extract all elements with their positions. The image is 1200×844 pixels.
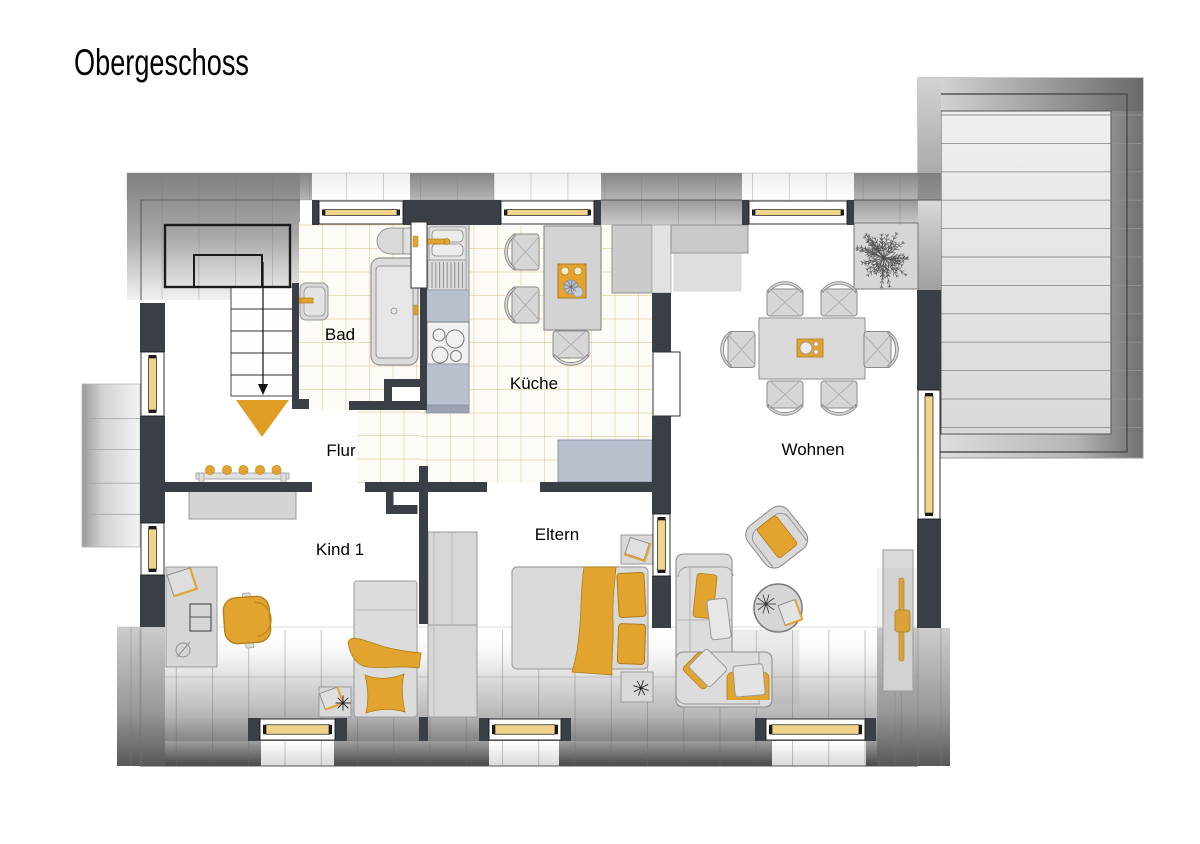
svg-text:Bad: Bad [325,325,355,344]
svg-text:Obergeschoss: Obergeschoss [74,42,249,83]
svg-text:Flur: Flur [326,441,356,460]
svg-text:Wohnen: Wohnen [781,440,844,459]
svg-text:Kind 1: Kind 1 [316,540,364,559]
svg-text:Eltern: Eltern [535,525,579,544]
svg-text:Küche: Küche [510,374,558,393]
